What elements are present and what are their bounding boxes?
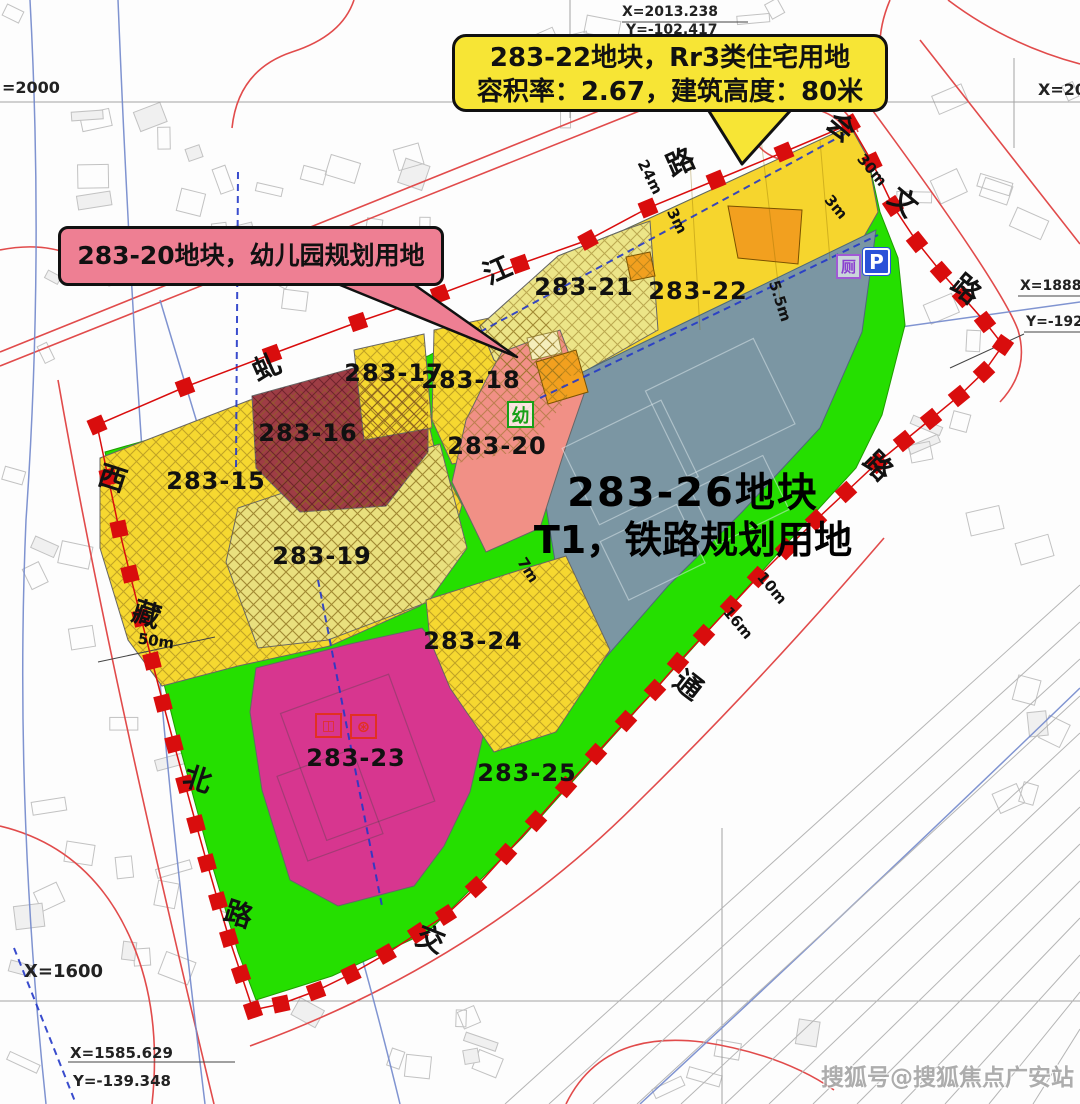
coord-label: X=1600 [24,961,103,982]
dimension-label: 3m [821,191,852,223]
parcel-label: 283-15 [166,467,265,495]
road-name-char: 藏 [127,590,166,637]
coord-label: Y=-139.348 [73,1072,171,1090]
callout-22-line1: 283-22地块，Rr3类住宅用地 [455,41,885,75]
road-name-char: 路 [659,137,701,185]
parcel-label: 283-25 [477,759,576,787]
callout-20-text: 283-20地块，幼儿园规划用地 [61,229,441,283]
road-name-char: 路 [219,890,258,937]
parcel-label: 283-18 [421,366,520,394]
facility-icon-glyph: ◫ [322,718,335,734]
parcel-label: 283-19 [272,542,371,570]
dimension-label: 5.5m [765,278,795,324]
parcel-label: 283-24 [423,627,522,655]
parcel-label: 283-21 [534,273,633,301]
road-name-char: 文 [880,177,927,226]
parcel-label: 283-22 [648,277,747,305]
coord-label: =2000 [2,78,60,97]
callout-22-line2: 容积率：2.67，建筑高度：80米 [455,75,885,109]
road-name-char: 江 [476,245,518,293]
coord-label: Y=-192. [1026,314,1080,330]
coord-label: X=1888. [1020,278,1080,294]
road-name-char: 北 [178,755,217,802]
parcel-label: 283-23 [306,744,405,772]
watermark: 搜狐号@搜狐焦点广安站 [821,1058,1074,1092]
callout-parcel-20: 283-20地块，幼儿园规划用地 [58,226,444,286]
planning-map: X=2013.238Y=-102.417=2000X=200X=1888.Y=-… [0,0,1080,1104]
facility-icon: ⊛ [350,714,377,739]
parcel-label: 283-16 [258,419,357,447]
dimension-label: 16m [719,603,756,643]
toilet-icon-glyph: 厕 [841,256,856,277]
facility-icon: ◫ [315,713,342,738]
road-name-char: 虬 [245,342,287,390]
parcel-26-title-line2: T1，铁路规划用地 [468,516,918,564]
dimension-label: 24m [634,157,667,198]
road-name-char: 西 [93,454,132,501]
callout-parcel-22: 283-22地块，Rr3类住宅用地 容积率：2.67，建筑高度：80米 [452,34,888,112]
parcel-26-title: 283-26地块 T1，铁路规划用地 [468,470,918,564]
coord-label: X=200 [1038,80,1080,99]
road-name-char: 交 [411,914,452,962]
kindergarten-icon: 幼 [507,401,534,428]
road-name-char: 路 [943,264,990,313]
road-name-char: 通 [666,660,713,709]
coord-label: X=1585.629 [70,1044,173,1062]
parking-icon: P [863,248,890,275]
dimension-label: 50m [137,630,176,653]
dimension-label: 30m [853,150,890,190]
parcel-label: 283-20 [447,432,546,460]
dimension-label: 3m [663,205,691,236]
parking-icon-glyph: P [869,250,884,274]
coord-label: X=2013.238 [622,4,718,20]
kindergarten-icon-glyph: 幼 [512,402,530,428]
dimension-label: 10m [753,568,790,608]
facility-icon-glyph: ⊛ [357,717,370,736]
toilet-icon: 厕 [836,254,861,279]
parcel-26-title-line1: 283-26地块 [468,470,918,516]
